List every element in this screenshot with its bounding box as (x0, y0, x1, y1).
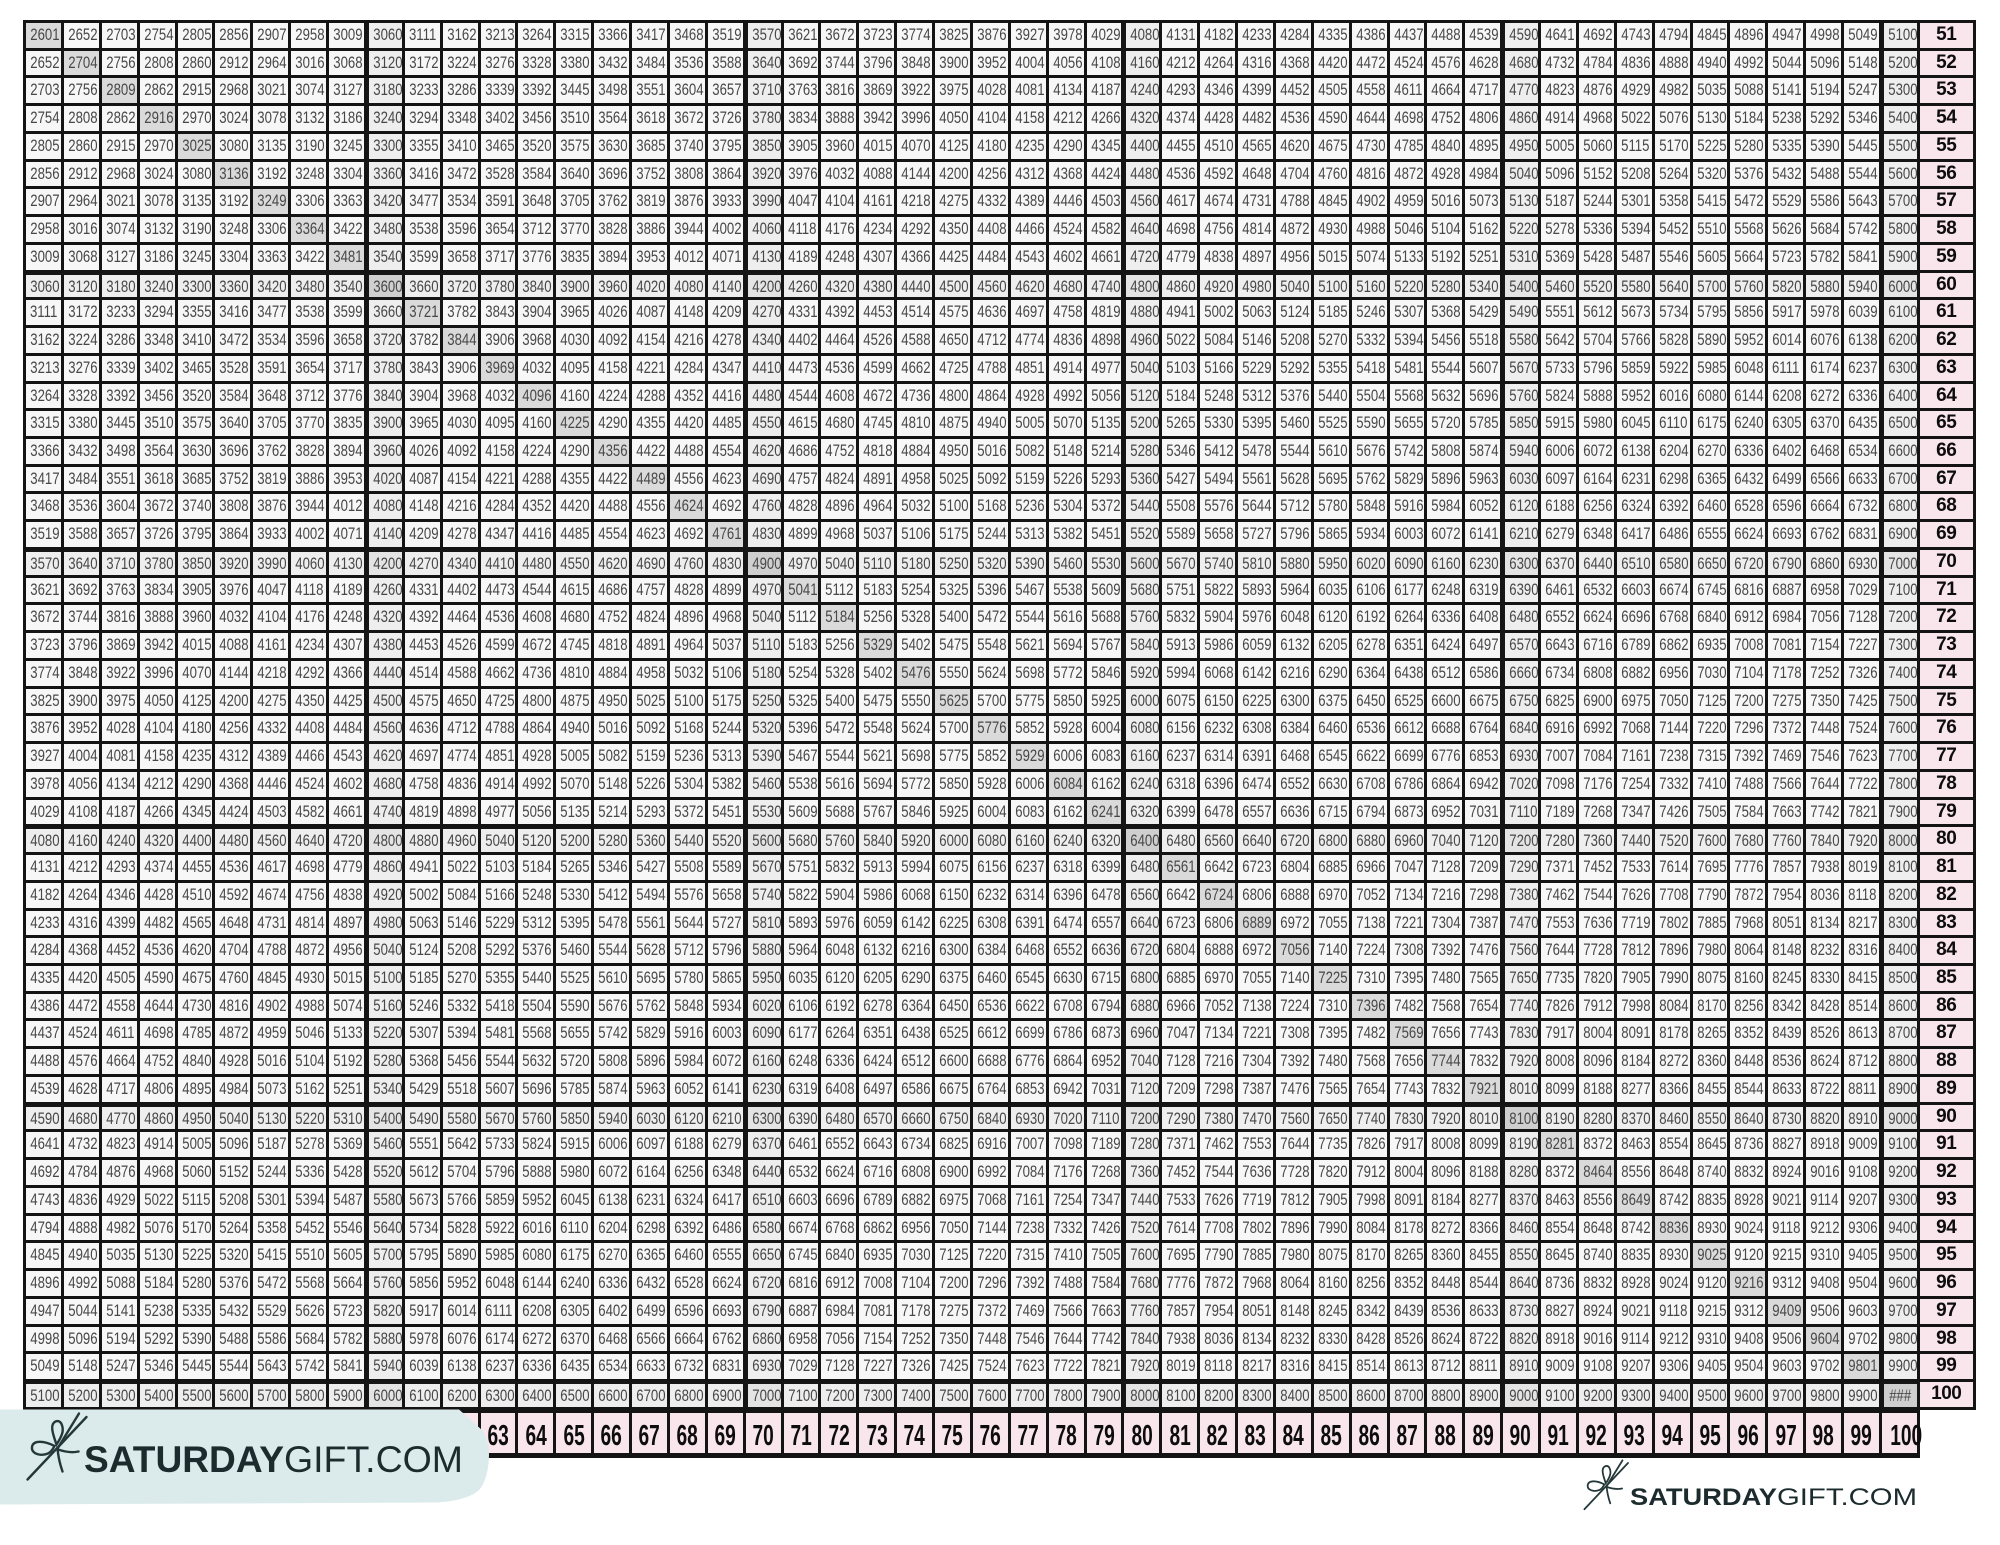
svg-text:GIFT.COM: GIFT.COM (284, 1439, 463, 1480)
svg-text:SATURDAY: SATURDAY (1630, 1484, 1777, 1511)
svg-text:GIFT.COM: GIFT.COM (1777, 1484, 1917, 1511)
svg-text:SATURDAY: SATURDAY (84, 1439, 284, 1480)
